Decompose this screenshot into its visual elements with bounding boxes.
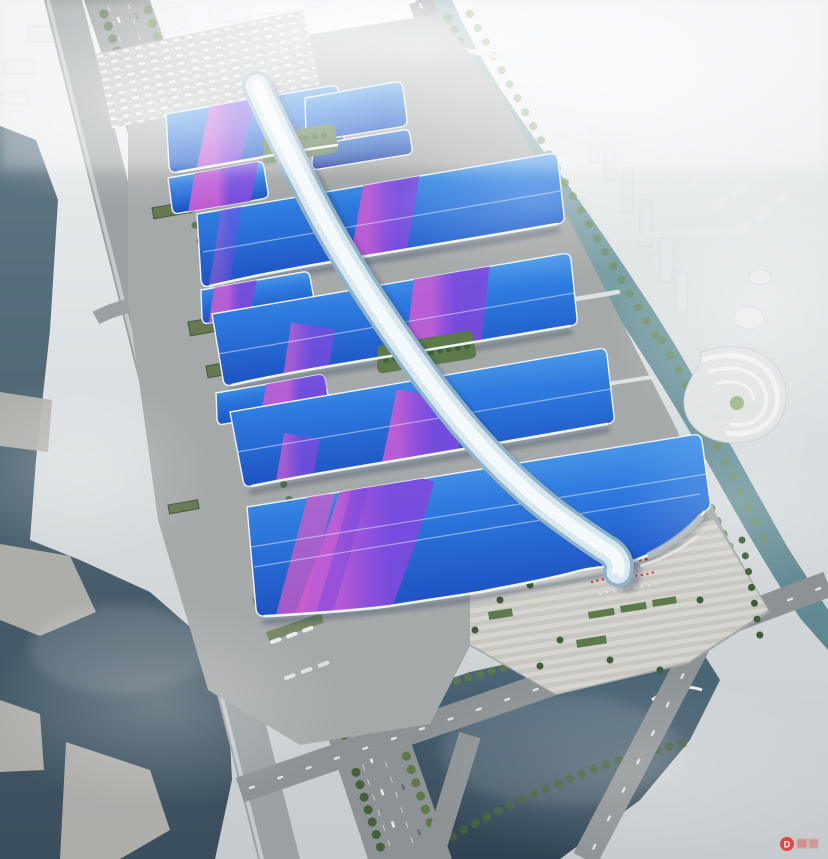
watermark-glyph-2 xyxy=(809,839,818,848)
watermark-letter: D xyxy=(784,840,791,850)
spine-tail-tip xyxy=(612,573,620,581)
screenshot-stage: Aerial rendering of a riverside exhibiti… xyxy=(0,0,828,859)
scene-svg: D xyxy=(0,0,828,859)
watermark-glyph-1 xyxy=(797,839,807,848)
